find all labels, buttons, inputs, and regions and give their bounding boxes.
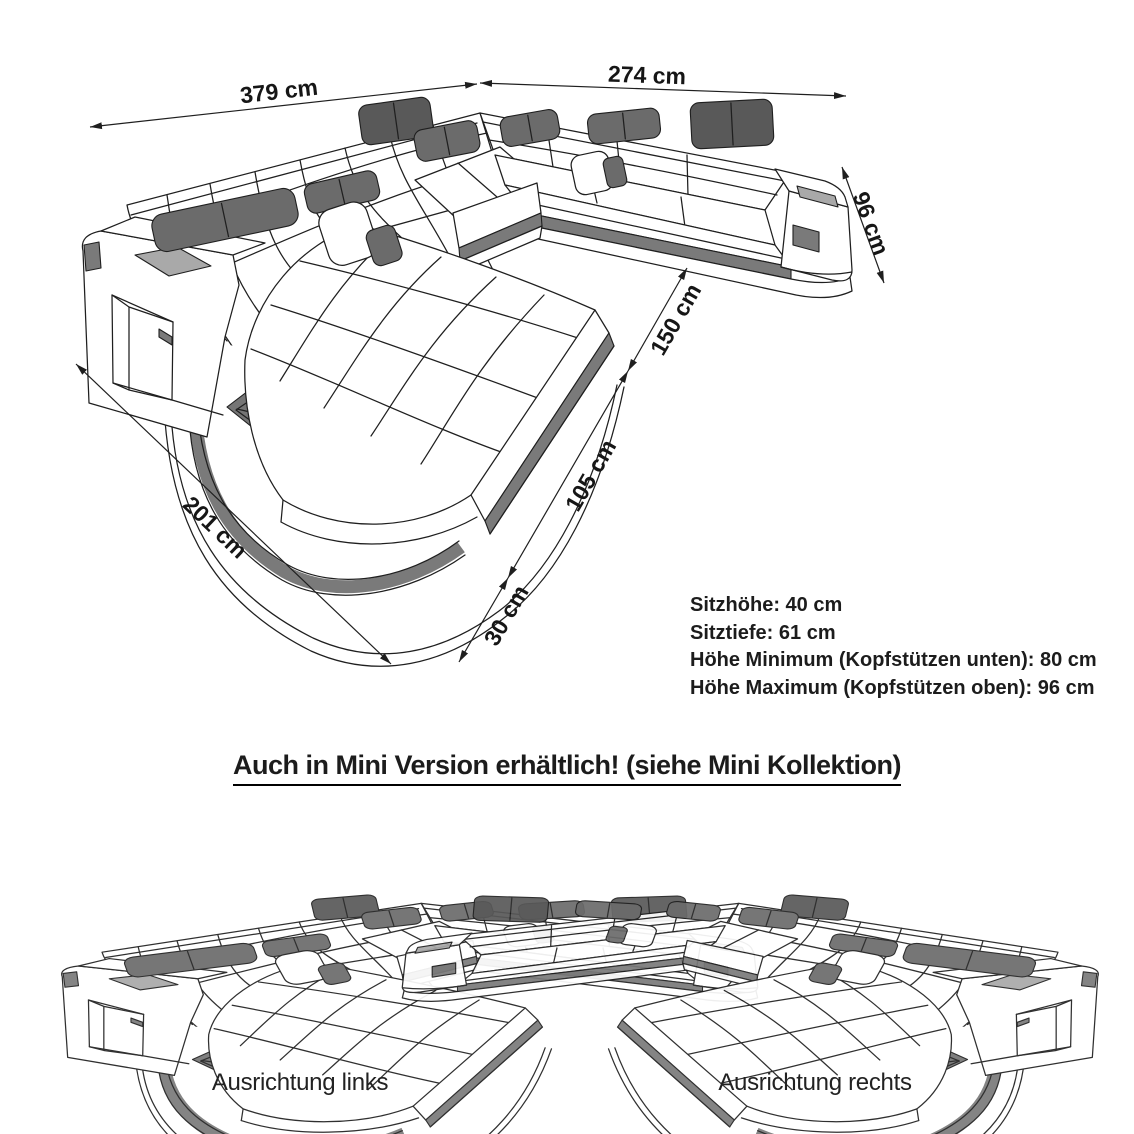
spec-seat-depth: Sitztiefe: 61 cm	[690, 620, 1097, 648]
spec-list: Sitzhöhe: 40 cm Sitztiefe: 61 cm Höhe Mi…	[690, 592, 1097, 702]
spec-height-max: Höhe Maximum (Kopfstützen oben): 96 cm	[690, 675, 1097, 703]
variant-right-label: Ausrichtung rechts	[718, 1069, 911, 1097]
variant-left-label: Ausrichtung links	[212, 1069, 388, 1097]
sofa-illustration-main	[82, 96, 852, 666]
spec-height-min: Höhe Minimum (Kopfstützen unten): 80 cm	[690, 647, 1097, 675]
sofa-dimension-diagram: 379 cm 274 cm 96 cm 150 cm 105 cm 30 cm …	[0, 0, 1134, 1134]
mini-version-heading-text: Auch in Mini Version erhältlich! (siehe …	[233, 750, 901, 786]
diagram-canvas	[0, 0, 1134, 1134]
spec-seat-height: Sitzhöhe: 40 cm	[690, 592, 1097, 620]
mini-version-heading: Auch in Mini Version erhältlich! (siehe …	[0, 750, 1134, 786]
dimension-back-right-label: 274 cm	[608, 61, 687, 91]
